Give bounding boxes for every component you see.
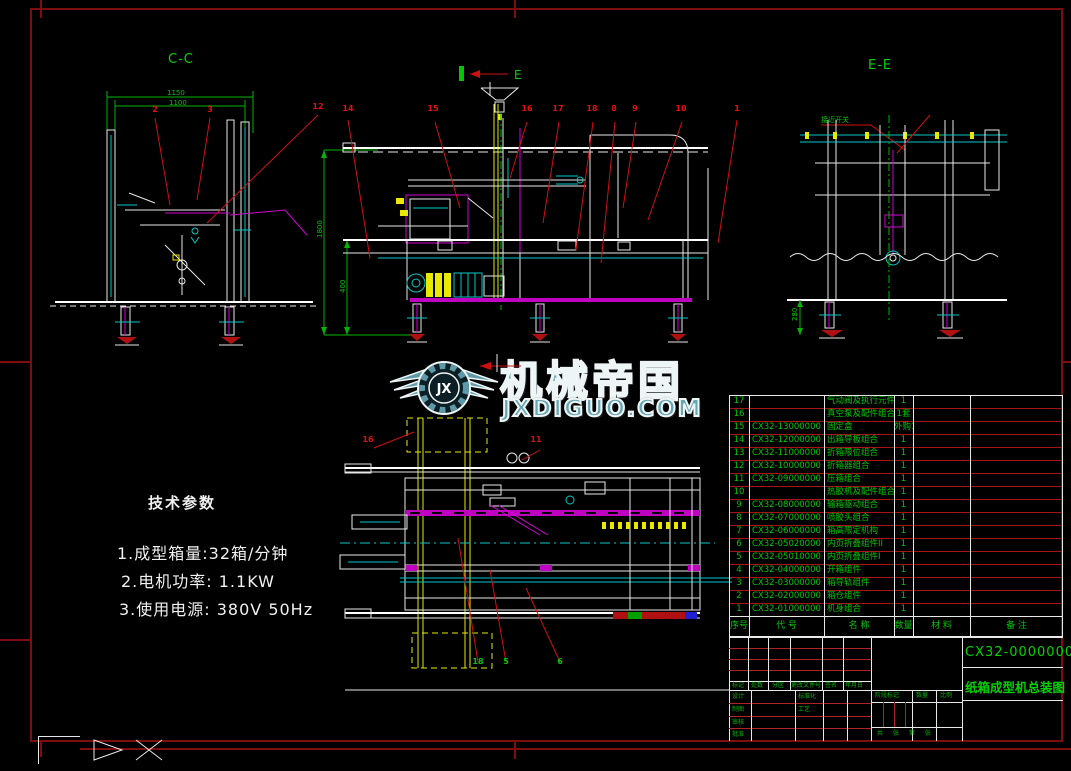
bom-code — [752, 408, 824, 421]
bom-header-name: 名 称 — [824, 616, 894, 637]
bom-seq: 6 — [729, 538, 749, 551]
sheet-note: 共 张 第 张 — [877, 731, 935, 737]
bom-qty: 1 — [894, 564, 913, 577]
bom-name: 箱高限定机构 — [827, 525, 894, 538]
bom-code: CX32-05010000 — [752, 551, 824, 564]
dim-1150: 1150 — [167, 89, 185, 97]
main-legs — [407, 304, 688, 342]
frame-left — [30, 8, 32, 742]
balloon-callout-plan_bottom: 18 — [472, 657, 483, 666]
rev-header-count: 处数 — [751, 683, 763, 689]
view-main-drawing: E 1800 400 — [318, 58, 748, 350]
bom-row: 12CX32-10000000折箱器组合1 — [729, 460, 1063, 474]
bom-name: 真空泵及配件组合 — [827, 408, 894, 421]
tech-params-item-2: 2.电机功率: 1.1KW — [121, 568, 275, 592]
bom-name: 出箱导板组合 — [827, 434, 894, 447]
corner-mark-v — [38, 736, 39, 764]
bom-seq: 14 — [729, 434, 749, 447]
bom-qty: 1 — [894, 603, 913, 616]
bom-name: 机身组合 — [827, 603, 894, 616]
bom-seq: 3 — [729, 577, 749, 590]
bom-name: 内页折叠组件I — [827, 551, 894, 564]
bom-code: CX32-08000000 — [752, 499, 824, 512]
balloon-callout-main: 8 — [611, 104, 617, 113]
bom-qty: 1套 — [894, 408, 913, 421]
bom-name: 折箱器组合 — [827, 460, 894, 473]
tick-right-mid — [1061, 361, 1071, 363]
bom-header-seq: 序号 — [729, 616, 749, 637]
rev-header-doc: 更改文件号 — [791, 683, 821, 689]
bom-code: CX32-01000000 — [752, 603, 824, 616]
tech-params-item-3: 3.使用电源: 380V 50Hz — [119, 596, 313, 620]
title-block: 标记 处数 分区 更改文件号 签名 年月日 设计 制图 审核 批准 标准化 工艺… — [729, 637, 1063, 741]
bom-code — [752, 486, 824, 499]
bom-header-code: 代 号 — [749, 616, 824, 637]
proximity-switch-label: 接近开关 — [821, 115, 849, 124]
sig-label-draw: 制图 — [732, 707, 744, 713]
bom-name: 箱导轨组件 — [827, 577, 894, 590]
bom-row: 6CX32-05020000内页折叠组件II1 — [729, 538, 1063, 552]
bom-code: CX32-13000000 — [752, 421, 824, 434]
tick-left-low — [0, 639, 30, 641]
drawing-number: CX32-00000000 — [965, 645, 1063, 660]
bom-code: CX32-05020000 — [752, 538, 824, 551]
bom-row: 8CX32-07000000喷胶头组合1 — [729, 512, 1063, 526]
scale-header: 比例 — [940, 693, 952, 699]
bom-row: 15CX32-13000000固定盒外购1 — [729, 421, 1063, 435]
bom-header-qty: 数量 — [894, 616, 913, 637]
watermark-monogram: JX — [436, 382, 452, 397]
rev-header-sign: 签名 — [825, 683, 837, 689]
balloon-callout-cc: 2 — [152, 105, 158, 114]
bom-qty: 外购1 — [894, 421, 913, 434]
tick-bottom-left — [40, 740, 42, 757]
bom-code: CX32-07000000 — [752, 512, 824, 525]
balloon-callout-main: 18 — [586, 104, 597, 113]
bom-row: 1CX32-01000000机身组合1 — [729, 603, 1063, 617]
tick-top-left — [40, 0, 42, 18]
tech-params-item-1: 1.成型箱量:32箱/分钟 — [117, 540, 288, 564]
balloon-callout-plan_bottom: 5 — [503, 657, 509, 666]
balloon-callout-main: 16 — [521, 104, 532, 113]
bom-code: CX32-04000000 — [752, 564, 824, 577]
bom-qty: 1 — [894, 538, 913, 551]
bom-code: CX32-02000000 — [752, 590, 824, 603]
watermark-site: JXDIGUO.COM — [502, 396, 703, 422]
bom-qty: 1 — [894, 447, 913, 460]
sig-label-approve: 批准 — [732, 732, 744, 738]
bom-seq: 13 — [729, 447, 749, 460]
watermark-pointer — [455, 350, 525, 376]
rev-header-mark: 标记 — [732, 683, 744, 689]
bom-qty: 1 — [894, 551, 913, 564]
bom-row: 16真空泵及配件组合1套 — [729, 408, 1063, 422]
bom-name: 热胶机及配件组合 — [827, 486, 894, 499]
balloon-callout-cc: 3 — [207, 105, 213, 114]
dim-280: 280 — [791, 308, 799, 321]
bom-qty: 1 — [894, 434, 913, 447]
bom-header-note: 备 注 — [970, 616, 1063, 637]
balloon-callout-main: 17 — [552, 104, 563, 113]
bom-row: 10热胶机及配件组合1 — [729, 486, 1063, 500]
frame-top — [30, 8, 1063, 10]
bom-name: 输箱驱动组合 — [827, 499, 894, 512]
bom-seq: 2 — [729, 590, 749, 603]
bom-seq: 11 — [729, 473, 749, 486]
balloon-callout-cc: 12 — [312, 102, 323, 111]
bom-row: 9CX32-08000000输箱驱动组合1 — [729, 499, 1063, 513]
view-plan-drawing — [340, 410, 740, 710]
bom-name: 折箱限位组合 — [827, 447, 894, 460]
balloon-callout-main: 1 — [734, 104, 740, 113]
bom-qty: 1 — [894, 512, 913, 525]
bom-row: 5CX32-05010000内页折叠组件I1 — [729, 551, 1063, 565]
bom-qty: 1 — [894, 525, 913, 538]
bom-qty: 1 — [894, 395, 913, 408]
rev-header-date: 年月日 — [845, 683, 863, 689]
cad-drawing-sheet: C-C E-E 1150 1100 — [0, 0, 1071, 771]
balloon-callout-main: 9 — [632, 104, 638, 113]
sig-label-std: 标准化 — [798, 694, 816, 700]
projection-symbol — [92, 738, 182, 762]
bom-code: CX32-06000000 — [752, 525, 824, 538]
bom-seq: 4 — [729, 564, 749, 577]
bom-code: CX32-09000000 — [752, 473, 824, 486]
bom-name: 压箱组合 — [827, 473, 894, 486]
bom-name: 喷胶头组合 — [827, 512, 894, 525]
bom-row: 13CX32-11000000折箱限位组合1 — [729, 447, 1063, 461]
bom-table: 17气动阀及执行元件组合装置116真空泵及配件组合1套15CX32-130000… — [729, 395, 1063, 637]
dim-1800: 1800 — [316, 220, 324, 238]
watermark: JX 机械帝国 JXDIGUO.COM — [388, 346, 708, 430]
balloon-callout-main: 10 — [675, 104, 686, 113]
bom-qty: 1 — [894, 499, 913, 512]
bom-row: 14CX32-12000000出箱导板组合1 — [729, 434, 1063, 448]
bom-name: 固定盒 — [827, 421, 894, 434]
bom-code: CX32-11000000 — [752, 447, 824, 460]
balloon-callout-plan: 16 — [362, 435, 373, 444]
sig-label-design: 设计 — [732, 694, 744, 700]
bom-header-mat: 材 料 — [913, 616, 970, 637]
bom-name: 内页折叠组件II — [827, 538, 894, 551]
section-label-ee: E-E — [868, 58, 892, 73]
bom-name: 气动阀及执行元件组合装置 — [827, 395, 894, 408]
balloon-callout-plan_bottom: 6 — [557, 657, 563, 666]
bom-row: 7CX32-06000000箱高限定机构1 — [729, 525, 1063, 539]
bom-row: 17气动阀及执行元件组合装置1 — [729, 395, 1063, 409]
rev-header-zone: 分区 — [772, 683, 784, 689]
stage-header: 阶段标记 — [875, 693, 899, 699]
bom-seq: 10 — [729, 486, 749, 499]
view-ee-drawing: 接近开关 280 — [785, 95, 1020, 353]
corner-mark-h — [38, 736, 80, 737]
dim-400: 400 — [339, 280, 347, 293]
sig-label-check: 审核 — [732, 720, 744, 726]
tick-left-mid — [0, 361, 30, 363]
bom-name: 箱仓组件 — [827, 590, 894, 603]
bom-row: 4CX32-04000000开箱组件1 — [729, 564, 1063, 578]
bom-code: CX32-03000000 — [752, 577, 824, 590]
bom-qty: 1 — [894, 590, 913, 603]
bom-code — [752, 395, 824, 408]
bom-name: 开箱组件 — [827, 564, 894, 577]
bom-seq: 7 — [729, 525, 749, 538]
bom-seq: 12 — [729, 460, 749, 473]
bom-seq: 5 — [729, 551, 749, 564]
bom-row: 2CX32-02000000箱仓组件1 — [729, 590, 1063, 604]
bom-seq: 15 — [729, 421, 749, 434]
bom-seq: 16 — [729, 408, 749, 421]
bom-row: 11CX32-09000000压箱组合1 — [729, 473, 1063, 487]
bom-qty: 1 — [894, 460, 913, 473]
view-cc-drawing: 1150 1100 — [45, 85, 335, 353]
bom-qty: 1 — [894, 473, 913, 486]
bom-qty: 1 — [894, 577, 913, 590]
qty-header: 数量 — [916, 693, 928, 699]
sig-label-process: 工艺 — [798, 707, 810, 713]
bom-seq: 1 — [729, 603, 749, 616]
section-label-cc: C-C — [168, 52, 194, 67]
section-arrow-label: E — [514, 68, 522, 82]
tech-params-title: 技术参数 — [148, 492, 216, 513]
bom-qty: 1 — [894, 486, 913, 499]
plan-yellow-comb — [602, 522, 686, 529]
bom-code: CX32-12000000 — [752, 434, 824, 447]
bom-seq: 9 — [729, 499, 749, 512]
balloon-callout-plan: 11 — [530, 435, 541, 444]
bom-row: 3CX32-03000000箱导轨组件1 — [729, 577, 1063, 591]
drawing-title: 纸箱成型机总装图 — [965, 677, 1063, 696]
bom-seq: 8 — [729, 512, 749, 525]
bom-seq: 17 — [729, 395, 749, 408]
bom-code: CX32-10000000 — [752, 460, 824, 473]
balloon-callout-main: 14 — [342, 104, 353, 113]
tick-top-center — [514, 0, 516, 18]
dim-1100: 1100 — [169, 99, 187, 107]
bottom-baseline — [80, 748, 1071, 750]
balloon-callout-main: 15 — [427, 104, 438, 113]
